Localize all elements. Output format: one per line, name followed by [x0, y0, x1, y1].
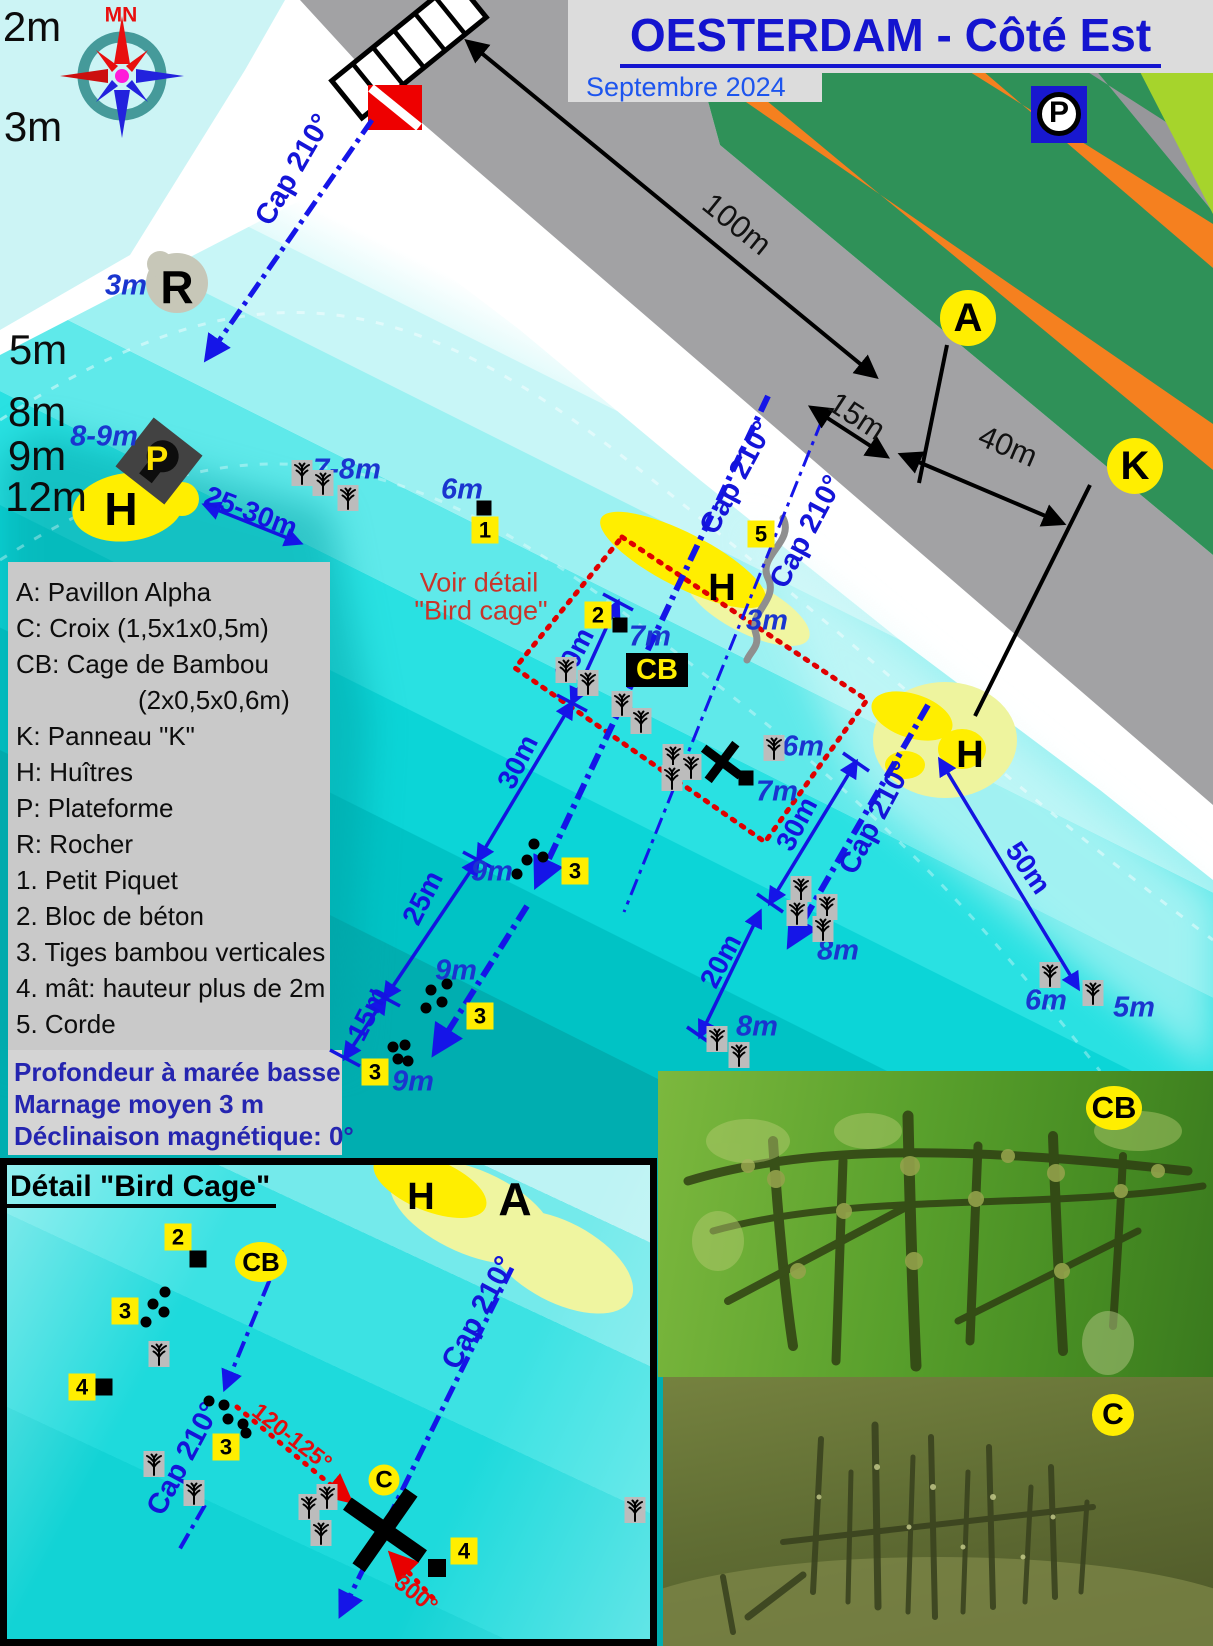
- legend-item: 4. mât: hauteur plus de 2m: [16, 970, 330, 1006]
- bamboo-stake-icon: [681, 754, 702, 780]
- legend-item: A: Pavillon Alpha: [16, 574, 330, 610]
- distance-label: 15m: [823, 387, 890, 446]
- bloc-beton-badge: 2: [585, 602, 612, 629]
- stake-dot: [437, 997, 448, 1008]
- oyster-label: H: [956, 736, 983, 774]
- dive-site-map: OESTERDAM - Côté Est Septembre 2024 A: P…: [0, 0, 1213, 1646]
- notes: Profondeur à marée basseMarnage moyen 3 …: [8, 1050, 342, 1155]
- date-label: Septembre 2024: [586, 73, 786, 102]
- legend: A: Pavillon AlphaC: Croix (1,5x1x0,5m)CB…: [8, 562, 330, 1050]
- bamboo-stake-icon: [791, 876, 812, 902]
- bamboo-stake-icon: [787, 900, 808, 926]
- depth-note: 6m: [1025, 987, 1067, 1016]
- bamboo-stake-icon: [292, 460, 313, 486]
- legend-item: P: Plateforme: [16, 790, 330, 826]
- stake-dot: [442, 979, 453, 990]
- corde-badge: 5: [748, 521, 775, 548]
- bamboo-stake-icon: [817, 894, 838, 920]
- distance-label: 30m: [493, 731, 543, 794]
- rock: [147, 251, 173, 277]
- subtitle-box: Septembre 2024: [568, 73, 822, 102]
- concrete-block-icon: [477, 501, 492, 516]
- rope: [747, 518, 785, 660]
- heading-label: Cap 210°: [251, 110, 338, 231]
- stake-dot: [393, 1054, 404, 1065]
- tiges-bambou-badge: 3: [467, 1003, 494, 1030]
- grass-band: [1136, 56, 1213, 214]
- bamboo-stake-icon: [662, 765, 683, 791]
- tiges-bambou-badge: 3: [562, 858, 589, 885]
- measure-ticks: [330, 594, 869, 1066]
- depth-label: 12m: [5, 476, 87, 518]
- depth-note: 9m: [392, 1068, 434, 1097]
- depth-note: 7m: [756, 778, 798, 807]
- rock-label: R: [160, 264, 193, 310]
- depth-label: 9m: [8, 435, 66, 477]
- shallow-corner: [0, 0, 285, 330]
- bamboo-stake-icon: [729, 1042, 750, 1068]
- legend-item: 1. Petit Piquet: [16, 862, 330, 898]
- depth-note: 7-8m: [313, 456, 381, 485]
- stairs: [332, 0, 487, 118]
- depth-label: 5m: [9, 329, 67, 371]
- stake-dot: [388, 1042, 399, 1053]
- depth-note: 8m: [736, 1013, 778, 1042]
- legend-item: CB: Cage de Bambou: [16, 646, 330, 682]
- dive-flag-icon: [368, 85, 422, 130]
- compass-north-label: MN: [105, 5, 138, 26]
- depth-note: 9m: [435, 957, 477, 986]
- depth-label: 8m: [8, 391, 66, 433]
- compass-rose: [60, 16, 184, 138]
- bamboo-stake-icon: [1040, 962, 1061, 988]
- depth-note: 5m: [1113, 994, 1155, 1023]
- note-line: Profondeur à marée basse: [14, 1056, 342, 1088]
- note-line: Déclinaison magnétique: 0°: [14, 1120, 342, 1152]
- oyster-label: H: [104, 486, 137, 532]
- stake-dot: [512, 869, 523, 880]
- bamboo-stake-icon: [707, 1026, 728, 1052]
- stake-dot: [426, 985, 437, 996]
- concrete-block-icon: [739, 771, 754, 786]
- stake-dot: [421, 1003, 432, 1014]
- legend-item: 3. Tiges bambou verticales: [16, 934, 330, 970]
- heading-label: Cap 210°: [765, 471, 848, 593]
- depth-label: 2m: [3, 6, 61, 48]
- bamboo-stake-icon: [612, 691, 633, 717]
- bamboo-stake-icon: [313, 470, 334, 496]
- measure-arrows: [205, 505, 1078, 1058]
- distance-label: 50m: [1000, 837, 1055, 899]
- shallow-tongue: [740, 520, 1213, 1075]
- distance-label: 25m: [398, 867, 448, 930]
- distance-label: 20m: [695, 930, 746, 993]
- depth-note: 3m: [105, 272, 147, 301]
- legend-item: 5. Corde: [16, 1006, 330, 1042]
- distance-label: 25-30m: [201, 482, 301, 543]
- stake-dot: [522, 855, 533, 866]
- page-title: OESTERDAM - Côté Est: [620, 8, 1161, 68]
- see-detail-note: Voir détail: [420, 570, 539, 597]
- bamboo-stake-icon: [338, 485, 359, 511]
- inset-title: Détail "Bird Cage": [0, 1170, 276, 1204]
- see-detail-note: "Bird cage": [414, 598, 547, 625]
- distance-label: 30m: [771, 793, 822, 856]
- stake-dot: [529, 839, 540, 850]
- bamboo-stake-icon: [556, 657, 577, 683]
- detail-zone-rect: [515, 537, 867, 842]
- pavillon-alpha-badge: A: [940, 290, 996, 346]
- legend-item: R: Rocher: [16, 826, 330, 862]
- distance-label: 15m: [343, 983, 393, 1046]
- parking-label: P: [1049, 98, 1069, 128]
- concrete-block-icon: [613, 618, 628, 633]
- depth-note: 7m: [629, 623, 671, 652]
- dike: [300, 0, 1213, 805]
- bamboo-stake-icon: [578, 670, 599, 696]
- bamboo-stake-icon: [764, 735, 785, 761]
- depth-note: 8m: [817, 937, 859, 966]
- depth-note: 6m: [441, 476, 483, 505]
- heading-label: Cap 210°: [695, 417, 778, 539]
- petit-piquet-badge: 1: [472, 517, 499, 544]
- tiges-bambou-badge: 3: [362, 1059, 389, 1086]
- bamboo-stake-icon: [1083, 980, 1104, 1006]
- heading-label: Cap 210°: [834, 757, 917, 879]
- stake-dot: [400, 1040, 411, 1051]
- legend-item: K: Panneau "K": [16, 718, 330, 754]
- stake-dot: [538, 852, 549, 863]
- oyster-label: H: [708, 569, 735, 607]
- depth-note: 6m: [782, 733, 824, 762]
- bird-cage-inset: [0, 1158, 657, 1646]
- bamboo-stake-icon: [663, 744, 684, 770]
- bamboo-stake-icon: [631, 708, 652, 734]
- rock: [146, 253, 208, 313]
- photo-bamboo-cage: [658, 1071, 1213, 1377]
- platform-label: P: [146, 442, 169, 476]
- platform: [115, 417, 202, 504]
- distance-label: 10m: [549, 624, 599, 687]
- distance-label: 40m: [974, 420, 1042, 472]
- panneau-k-badge: K: [1107, 438, 1163, 494]
- photo-cross: [663, 1377, 1213, 1646]
- title-box: OESTERDAM - Côté Est: [568, 0, 1213, 73]
- legend-item: H: Huîtres: [16, 754, 330, 790]
- depth-note: 9m: [471, 858, 513, 887]
- cage-bambou-badge: CB: [626, 653, 688, 687]
- stake-dot: [403, 1056, 414, 1067]
- note-line: Marnage moyen 3 m: [14, 1088, 342, 1120]
- bamboo-stake-icon: [813, 916, 834, 942]
- parking-sign: [1031, 86, 1087, 143]
- depth-note: 8-9m: [70, 423, 138, 452]
- legend-item: (2x0,5x0,6m): [16, 682, 330, 718]
- legend-item: 2. Bloc de béton: [16, 898, 330, 934]
- depth-note: 3m: [746, 607, 788, 636]
- depth-label: 3m: [4, 106, 62, 148]
- distance-label: 100m: [697, 188, 777, 261]
- dike-measures: [468, 42, 1090, 716]
- legend-item: C: Croix (1,5x1x0,5m): [16, 610, 330, 646]
